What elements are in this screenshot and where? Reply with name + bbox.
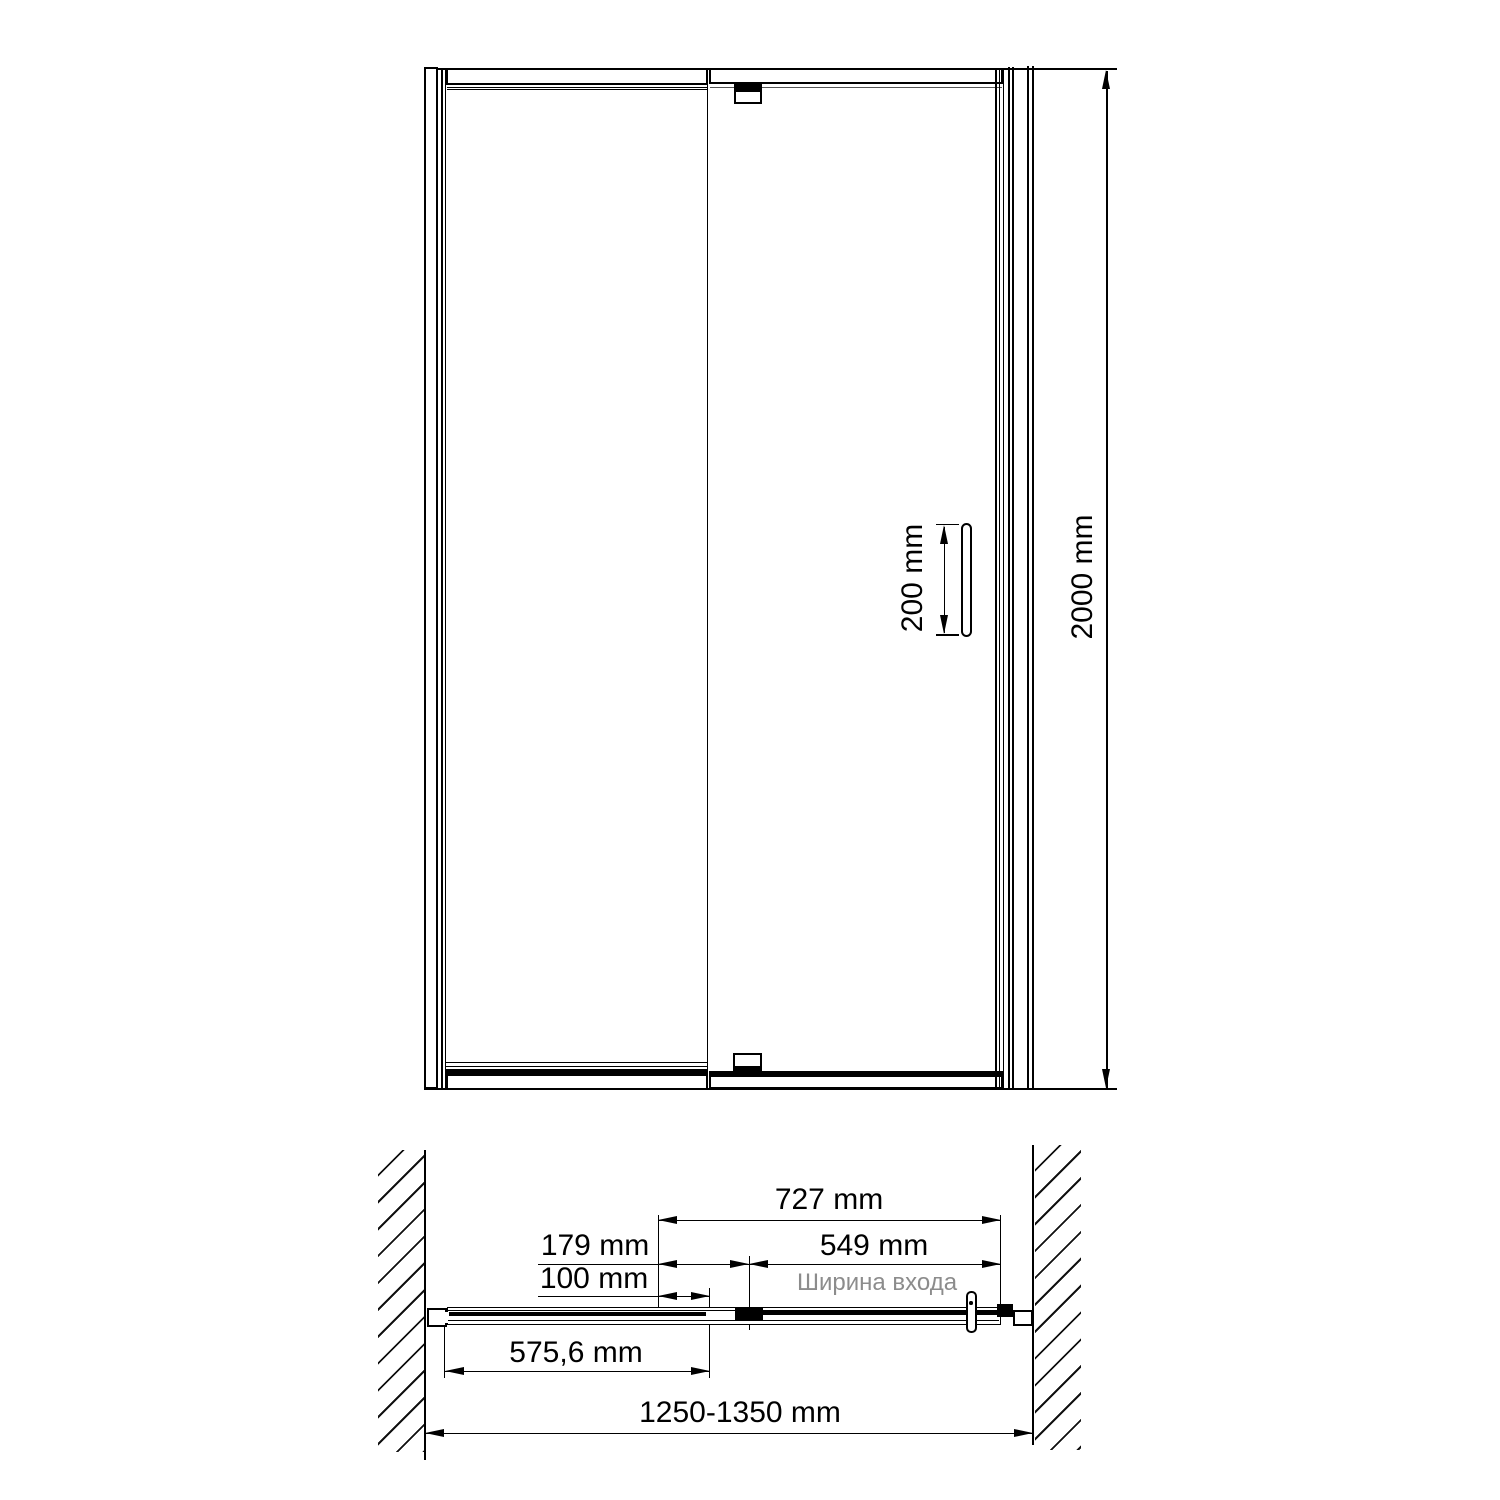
door-panel-top-rail xyxy=(709,68,1003,84)
height-dim-arrow-down xyxy=(1102,1069,1110,1088)
left-wall-profile xyxy=(424,67,438,1089)
dim-5756-arrow-left xyxy=(445,1367,464,1375)
ext-line-fixed-right xyxy=(709,1288,710,1378)
door-handle-plan-pin xyxy=(969,1301,973,1305)
track-inner-line-bottom xyxy=(448,1320,999,1321)
dim-179-arrow-right xyxy=(730,1260,749,1268)
technical-drawing: 200 mm 2000 mm xyxy=(0,0,1500,1500)
right-wall-profile-line-2 xyxy=(1012,67,1014,1089)
handle-dim-arrow-down xyxy=(940,615,948,634)
fixed-panel-bottom-rail xyxy=(446,1074,708,1090)
door-stile-line-3 xyxy=(1003,69,1005,1088)
pivot-block-plan xyxy=(735,1307,763,1320)
entry-width-caption: Ширина входа xyxy=(797,1271,957,1295)
door-handle-plan xyxy=(966,1291,978,1333)
dim-range-arrow-right xyxy=(1014,1429,1033,1437)
door-stile-line-2 xyxy=(999,69,1001,1088)
door-panel-bottom-rail xyxy=(709,1075,1003,1089)
height-dim-label: 2000 mm xyxy=(1068,514,1098,639)
dim-549-arrow-right xyxy=(982,1260,1001,1268)
dim-100-label: 100 mm xyxy=(540,1264,648,1294)
right-wall-bracket-plan xyxy=(1013,1310,1033,1326)
handle-dim-label: 200 mm xyxy=(898,524,928,632)
door-glass-plan-band xyxy=(763,1311,1000,1316)
height-dim-arrow-up xyxy=(1102,70,1110,89)
panel-divider-line xyxy=(707,69,709,1088)
left-adjust-profile-line-1 xyxy=(441,69,443,1088)
fixed-glass-bottom-line xyxy=(446,1062,707,1063)
right-wall-profile-line-3 xyxy=(1027,66,1029,1089)
right-wall-hatch xyxy=(1035,1145,1081,1450)
fixed-bottom-seal-line xyxy=(446,1066,707,1067)
top-pivot-clip xyxy=(734,90,762,104)
left-wall-face-line xyxy=(424,1150,426,1460)
dim-100-arrow-right xyxy=(691,1292,710,1300)
dim-5756-arrow-right xyxy=(691,1367,710,1375)
dim-100-line xyxy=(538,1296,710,1298)
dim-549-label: 549 mm xyxy=(820,1231,928,1261)
left-wall-bracket-notch xyxy=(438,1312,448,1323)
fixed-panel-top-seal-line-1 xyxy=(447,87,707,88)
left-wall-hatch xyxy=(378,1150,424,1452)
bottom-pivot-clip-bar xyxy=(733,1067,762,1074)
dim-range-arrow-left xyxy=(425,1429,444,1437)
dim-179-arrow-left xyxy=(658,1260,677,1268)
height-dim-line xyxy=(1106,71,1108,1088)
door-handle-elevation xyxy=(961,523,972,637)
dim-727-line xyxy=(658,1220,1001,1222)
right-wall-profile-line-4 xyxy=(1032,66,1034,1089)
dim-100-arrow-left xyxy=(658,1292,677,1300)
dim-727-label: 727 mm xyxy=(775,1185,883,1215)
door-stile-line-1 xyxy=(995,69,997,1088)
dim-727-arrow-left xyxy=(658,1216,677,1224)
handle-dim-tick-bottom xyxy=(936,634,959,636)
bottom-pivot-clip xyxy=(733,1053,762,1069)
dim-range-label: 1250-1350 mm xyxy=(639,1398,841,1428)
dim-5756-label: 575,6 mm xyxy=(509,1338,642,1368)
fixed-glass-plan-band xyxy=(449,1312,706,1317)
dim-5756-line xyxy=(445,1371,710,1373)
left-adjust-profile-line-2 xyxy=(445,69,447,1088)
fixed-panel-top-seal-line-2 xyxy=(447,89,707,90)
right-wall-face-line xyxy=(1032,1145,1034,1445)
fixed-panel-top-rail xyxy=(446,68,708,85)
dim-727-arrow-right xyxy=(982,1216,1001,1224)
right-end-block-plan xyxy=(997,1304,1013,1318)
dim-179-label: 179 mm xyxy=(541,1231,649,1261)
top-pivot-clip-bar xyxy=(734,83,762,90)
handle-dim-arrow-up xyxy=(940,525,948,544)
dim-549-arrow-left xyxy=(749,1260,768,1268)
right-wall-profile-line-1 xyxy=(1008,67,1010,1089)
dim-range-line xyxy=(425,1433,1033,1435)
